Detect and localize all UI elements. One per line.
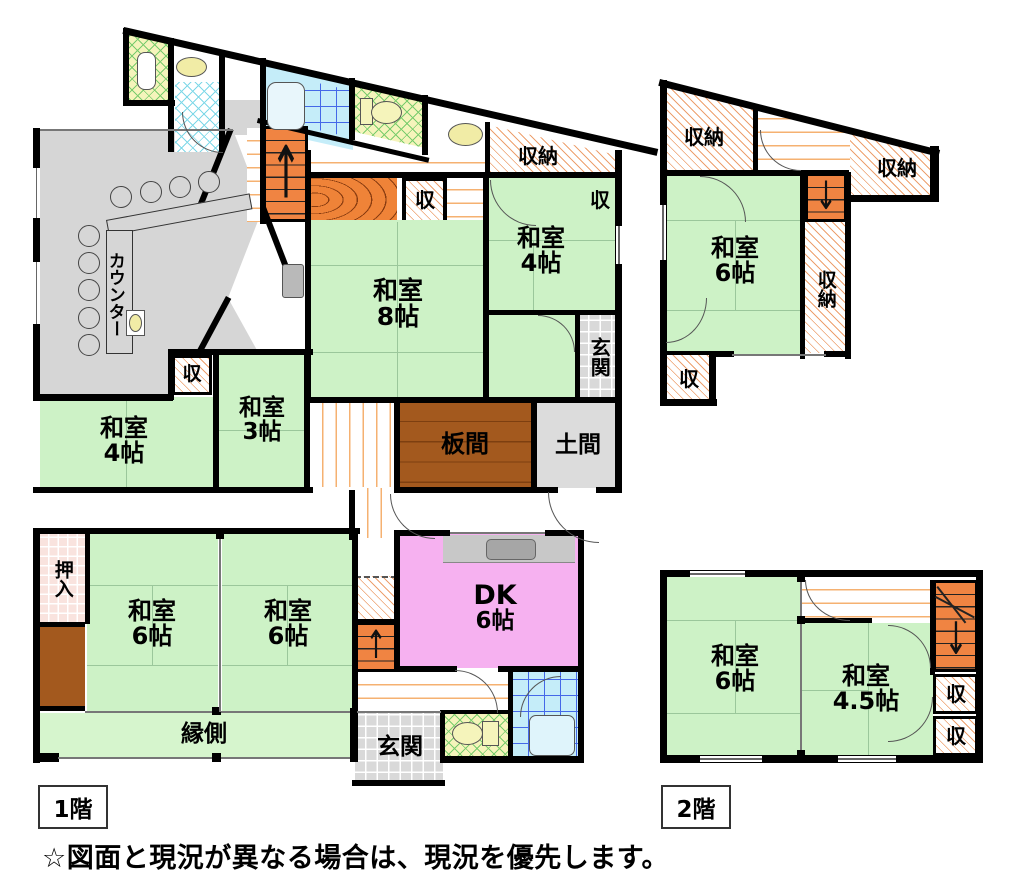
label-washitsu-6a: 和室 6帖: [107, 595, 197, 653]
room-size: 4.5帖: [833, 689, 900, 714]
wall: [305, 397, 621, 403]
window: [33, 262, 40, 324]
wall: [422, 95, 428, 155]
wall: [33, 487, 313, 493]
wall: [976, 570, 983, 763]
stairs-down-arrow-icon: ↓: [806, 161, 846, 233]
toilet-c-bowl: [452, 722, 483, 745]
toilet-c-tank: [482, 721, 499, 746]
wall: [483, 310, 621, 315]
wall: [85, 534, 90, 624]
label-2f-shu-r1: 収: [936, 678, 976, 710]
label-washitsu-4tr: 和室 4帖: [498, 222, 584, 280]
wall: [508, 670, 513, 762]
room-name: 和室: [239, 397, 285, 421]
bathtub-main: [529, 715, 575, 756]
kitchen-sink: [486, 539, 536, 560]
partition-line: [219, 534, 221, 712]
wall: [451, 172, 621, 178]
label-washitsu-3: 和室 3帖: [218, 392, 306, 450]
wall: [824, 351, 847, 357]
stool: [78, 225, 100, 247]
counter-sink-bowl: [129, 314, 142, 332]
stairs-up-arrow-icon: ↑: [266, 88, 306, 259]
wall: [615, 399, 622, 493]
label-shu-mid: 収: [404, 180, 446, 220]
room-size: 6帖: [132, 624, 173, 649]
room-name: 和室: [517, 226, 565, 251]
wall: [578, 668, 584, 763]
label-2f-shu-r2: 収: [936, 720, 976, 752]
label-shu-counter: 収: [172, 358, 212, 392]
room-size: 6帖: [475, 610, 514, 634]
label-washitsu-6b: 和室 6帖: [243, 595, 333, 653]
wall: [38, 706, 85, 711]
wall: [531, 399, 537, 491]
room-name: 和室: [128, 599, 176, 624]
label-2f-shuno-tl: 収納: [670, 122, 738, 152]
wall: [350, 708, 358, 762]
wall: [168, 38, 174, 152]
window-line: [732, 354, 826, 356]
stool: [110, 186, 132, 208]
appliance: [282, 264, 304, 298]
window-line: [450, 532, 545, 534]
wall: [710, 351, 716, 405]
room-size: 6帖: [715, 261, 756, 286]
wall: [394, 487, 536, 493]
stool: [78, 279, 100, 301]
wall: [33, 528, 360, 534]
label-doma: 土間: [542, 430, 614, 462]
wall: [33, 528, 40, 763]
room-name: 和室: [264, 599, 312, 624]
tatami-line: [667, 713, 800, 714]
room-size: 6帖: [715, 669, 756, 694]
room-size: 4帖: [104, 441, 145, 466]
toilet-a: [137, 52, 156, 90]
stairs-up-arrow-icon: ↑: [357, 610, 395, 682]
stool: [78, 307, 100, 329]
wall: [578, 530, 584, 674]
window: [616, 226, 622, 264]
wall: [394, 399, 400, 493]
label-engawa: 縁側: [162, 719, 246, 751]
window-line: [357, 711, 441, 713]
stool: [78, 252, 100, 274]
washbasin-b: [448, 123, 483, 146]
wall: [168, 349, 313, 355]
label-genkan-main: 玄関: [362, 732, 438, 764]
room-size: 3帖: [242, 421, 281, 445]
wall: [352, 780, 445, 786]
wall: [349, 78, 355, 140]
wall: [847, 195, 939, 202]
wall: [33, 753, 59, 762]
label-shuno-top: 収納: [500, 141, 576, 171]
label-counter: カウンター: [100, 246, 128, 342]
hall-stripes-v2: [355, 488, 394, 538]
stool: [198, 171, 220, 193]
tokonoma-alcove: [308, 175, 397, 220]
window: [690, 571, 745, 577]
window-line: [58, 757, 350, 759]
room-size: 8帖: [377, 304, 419, 330]
wall: [33, 394, 173, 401]
window: [660, 205, 666, 260]
window: [838, 756, 896, 762]
wall: [661, 399, 717, 406]
tatami-line: [667, 620, 800, 621]
wall: [394, 666, 457, 672]
room-name: 和室: [711, 236, 759, 261]
floor1-tag: 1階: [38, 785, 108, 829]
room-size: 6帖: [268, 624, 309, 649]
wall: [660, 570, 667, 763]
label-itanoma: 板間: [420, 428, 510, 460]
tatami-line: [310, 352, 487, 353]
wall: [440, 756, 584, 763]
washbasin-a: [176, 57, 207, 77]
wall: [123, 28, 129, 105]
stool: [78, 334, 100, 356]
wall: [305, 172, 451, 178]
tatami-line: [222, 665, 352, 666]
wall: [483, 175, 489, 400]
wall: [440, 710, 445, 762]
window: [33, 168, 40, 218]
label-genkan-right: 玄関: [580, 320, 618, 394]
room-name: 和室: [100, 416, 148, 441]
label-2f-shu-bl: 収: [669, 362, 709, 396]
window: [700, 756, 762, 762]
stool: [140, 181, 162, 203]
wall: [596, 487, 621, 493]
disclaimer-text: ☆図面と現況が異なる場合は、現況を優先します。: [42, 836, 669, 875]
label-2f-shuno-tr: 収納: [864, 153, 930, 183]
label-dk: DK 6帖: [450, 578, 540, 638]
wall: [930, 146, 939, 202]
label-shu-4r: 収: [580, 182, 620, 218]
partition-line: [800, 577, 802, 757]
label-washitsu-4l: 和室 4帖: [78, 412, 170, 470]
room-name: DK: [473, 582, 516, 610]
wall: [753, 104, 758, 174]
tatami-line: [310, 265, 487, 266]
wall: [38, 622, 85, 627]
label-2f-washitsu6-low: 和室 6帖: [690, 640, 780, 698]
toilet-b-bowl: [371, 101, 402, 124]
wall-post: [212, 753, 221, 762]
stool: [169, 176, 191, 198]
wall: [800, 175, 805, 359]
label-2f-washitsu6-up: 和室 6帖: [690, 232, 780, 290]
wall-post: [797, 750, 805, 758]
room-name: 和室: [373, 278, 423, 304]
room-name: 和室: [842, 664, 890, 689]
room-name: 和室: [711, 644, 759, 669]
closet-brown: [40, 627, 85, 707]
wall-post: [216, 531, 224, 539]
label-2f-shuno-right: 収納: [807, 246, 843, 332]
label-2f-washitsu45: 和室 4.5帖: [808, 660, 924, 718]
label-washitsu-8: 和室 8帖: [352, 275, 444, 333]
floor2-tag: 2階: [661, 785, 731, 829]
label-oshiire: 押入: [44, 546, 80, 612]
tatami-line: [87, 665, 218, 666]
stairs-down-arrow-icon: ↓: [935, 587, 977, 689]
hall-stripes-v1: [310, 403, 394, 487]
room-size: 4帖: [521, 251, 562, 276]
wall-post: [797, 574, 805, 582]
wall: [485, 122, 490, 177]
floor-plan: ↑ ↑ ↓ ↓ カウンター 収 収 収納 収 和室 8帖 和室 4帖 玄関 和室…: [0, 0, 1024, 891]
